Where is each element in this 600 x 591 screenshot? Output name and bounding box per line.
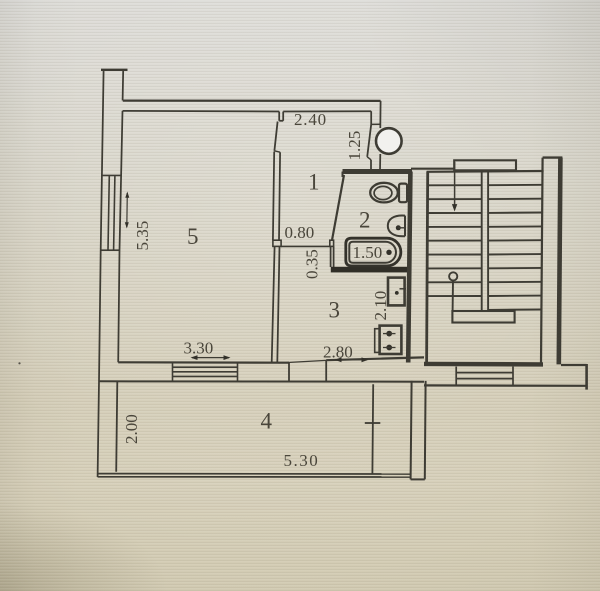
svg-text:1.50: 1.50: [353, 243, 383, 262]
svg-text:5: 5: [187, 224, 199, 249]
svg-text:2: 2: [359, 208, 371, 233]
svg-text:1.25: 1.25: [345, 131, 364, 161]
svg-text:2.00: 2.00: [122, 414, 141, 444]
svg-text:4: 4: [261, 409, 273, 434]
svg-text:3.30: 3.30: [184, 339, 214, 358]
svg-text:5.35: 5.35: [133, 221, 152, 251]
svg-text:3: 3: [329, 298, 341, 323]
svg-text:0.35: 0.35: [303, 249, 322, 279]
svg-text:2.40: 2.40: [294, 110, 327, 129]
svg-text:5.30: 5.30: [284, 451, 320, 470]
svg-text:2.10: 2.10: [371, 291, 390, 321]
svg-text:1: 1: [308, 170, 320, 195]
svg-text:0.80: 0.80: [285, 223, 315, 242]
